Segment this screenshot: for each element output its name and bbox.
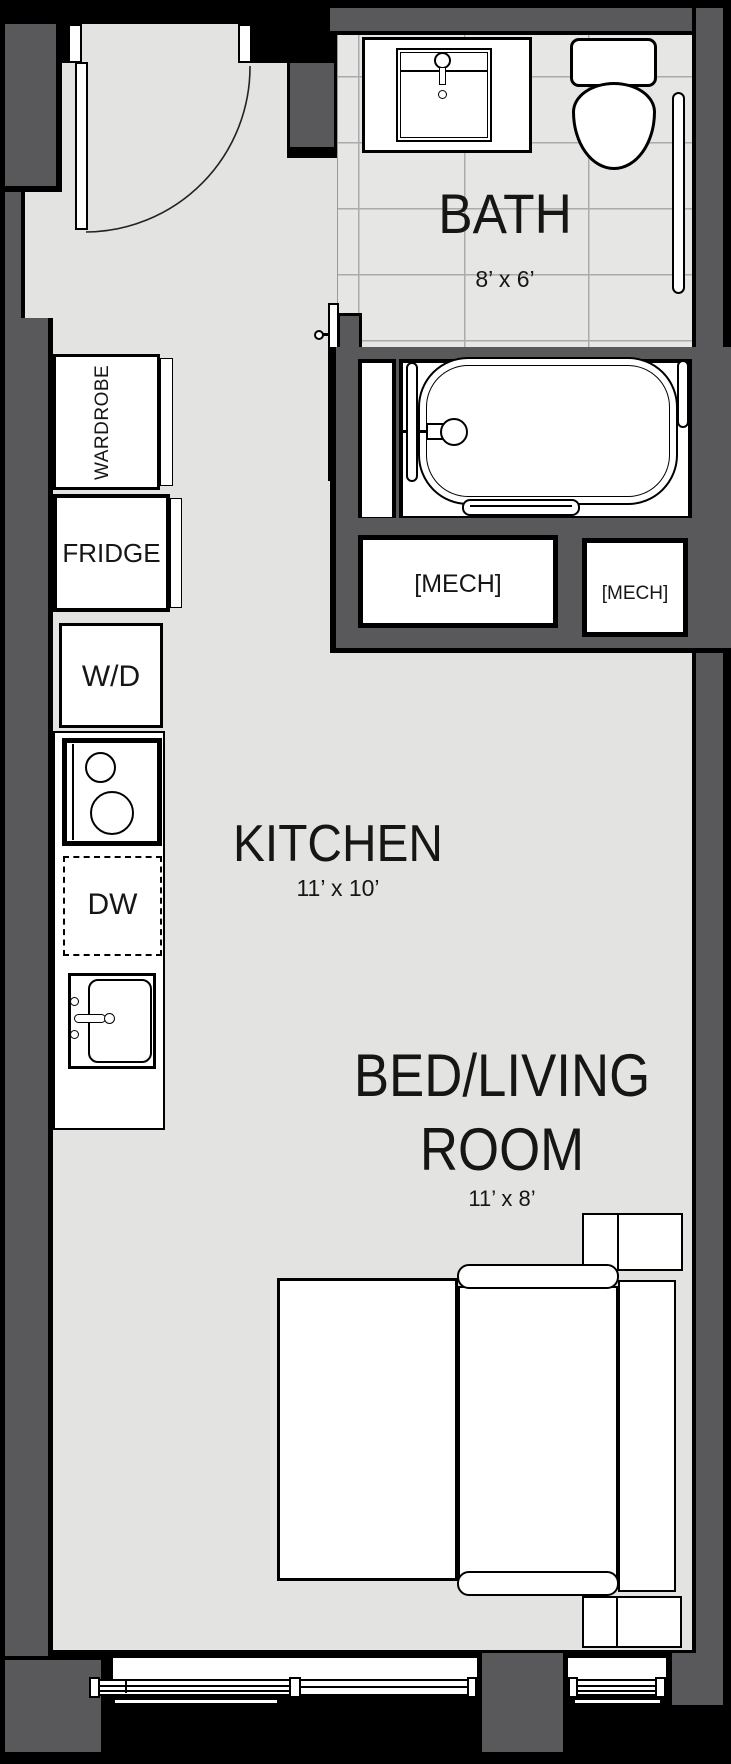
under-window-line-right [575,1700,660,1703]
vanity-faucet-stem [439,67,446,85]
stove-burner-large-icon [90,791,134,835]
floor-edge-line [53,1650,692,1658]
mech-room-large-label: [MECH] [358,572,558,597]
bed-icon [277,1278,458,1581]
dishwasher-label: DW [63,890,162,920]
tub-rail-bottom [462,499,580,516]
bath-room-dims: 8’ x 6’ [355,268,655,291]
under-window-line-left [115,1700,277,1703]
sofa-pad-bottom-left [582,1596,618,1648]
tub-grab-bar-right [677,360,689,428]
wall-corner-bottom-right [666,1653,723,1705]
window-icon-2 [301,1679,467,1696]
sofa-armrest-top [457,1264,619,1289]
wardrobe-label: WARDROBE [93,362,112,482]
window-cap-right-a [568,1677,578,1698]
bath-room-label: BATH [367,186,643,242]
window-sill-right [568,1658,667,1680]
washer-dryer-label: W/D [59,662,163,692]
wall-bath-left [287,63,337,147]
grab-bar-icon [672,92,685,294]
wall-left-main [5,318,53,1656]
bedliving-room-dims: 11’ x 8’ [302,1188,702,1210]
toilet-tank [570,38,657,87]
sofa-seat [458,1286,618,1578]
sofa-pad-top-right [617,1213,683,1271]
sink-valve-top [70,997,79,1006]
window-cap-mid [467,1677,477,1698]
kitchen-room-label: KITCHEN [200,818,476,870]
sofa-armrest-bottom [457,1571,619,1596]
window-icon [100,1679,289,1696]
window-icon-3 [578,1679,655,1696]
wall-right-main [692,8,723,1705]
window-cap-left [89,1677,100,1698]
wall-corner-bottom-left [5,1656,105,1752]
window-mullion [289,1677,301,1698]
bedliving-room-label-line1: BED/LIVING [326,1046,678,1106]
bath-door-knob-stub [322,333,330,336]
bedliving-room-label-line2: ROOM [326,1120,678,1180]
stove-left-line [72,744,74,840]
wall-window-pier [477,1653,568,1752]
sofa-pad-top-left [582,1213,619,1271]
window-cap-right-b [655,1677,666,1698]
fridge-label: FRIDGE [53,540,170,566]
wall-bath-left-cap [287,147,337,158]
fridge-front [170,498,182,608]
sink-valve-bottom [70,1030,79,1039]
linen-closet [358,359,396,521]
tub-faucet-icon [440,418,468,446]
door-swing-arc-icon [72,52,257,242]
sofa-pad-bottom-right [616,1596,682,1648]
wall-left-upper [5,192,25,318]
wall-left-entry [5,24,62,192]
kitchen-room-dims: 11’ x 10’ [188,877,488,900]
tub-rail-inner-line [470,505,572,507]
mech-room-small-label: [MECH] [582,584,688,603]
sink-faucet-handle [74,1014,106,1023]
sofa-back-panel [618,1280,676,1592]
floor-plan: BATH 8’ x 6’ [MECH] [MECH] WARDROBE FRID… [0,0,731,1764]
tub-grab-bar-left [406,362,418,482]
sink-faucet-knob [104,1013,115,1024]
wall-bath-top [330,8,723,35]
wardrobe-front [160,358,173,486]
vanity-drain [438,90,447,99]
stove-burners-icon [85,752,116,783]
